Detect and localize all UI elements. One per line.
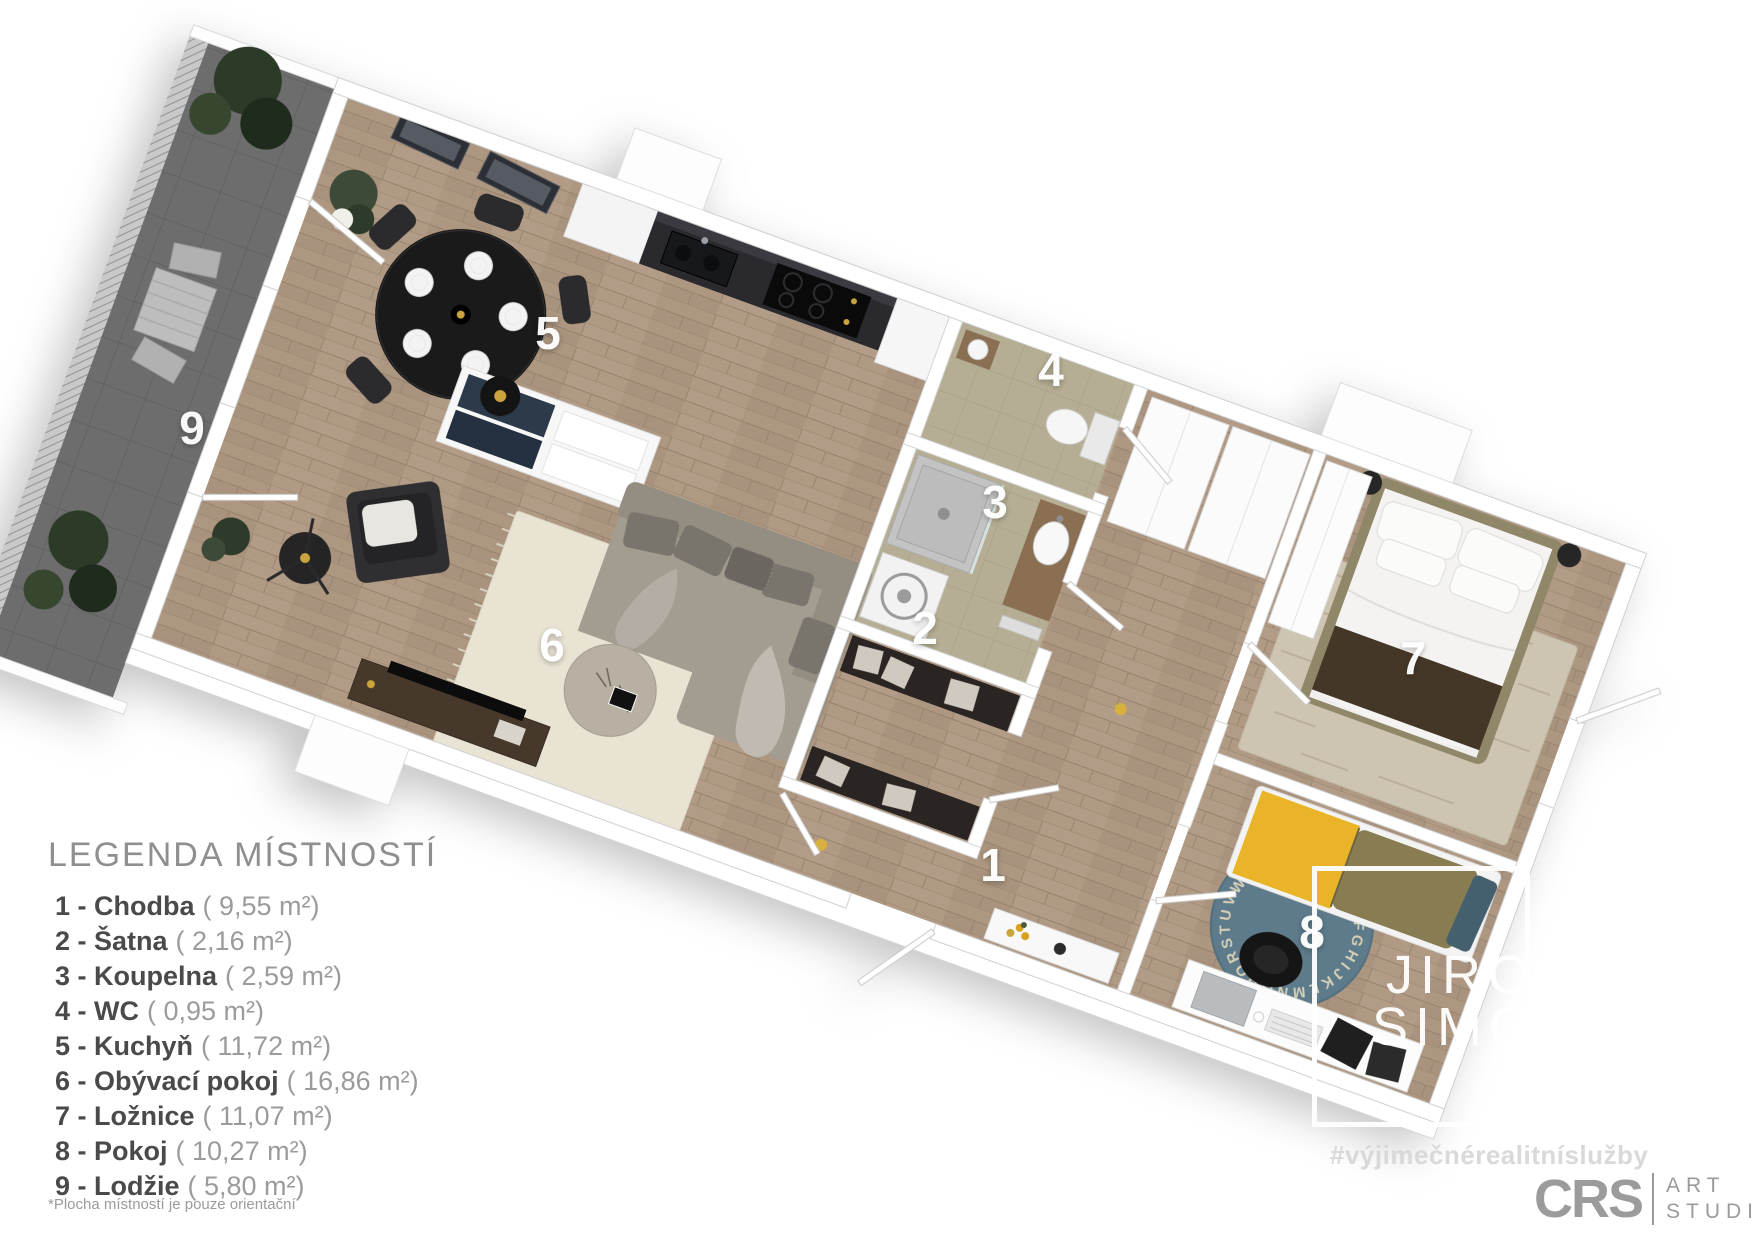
legend-item-label: 5 - Kuchyň (55, 1031, 193, 1061)
legend-item: 2 - Šatna( 2,16 m²) (48, 924, 437, 959)
room-label-2-satna: 2 (912, 601, 938, 655)
legend-item-label: 6 - Obývací pokoj (55, 1066, 279, 1096)
legend-item-area: ( 10,27 m²) (176, 1136, 308, 1166)
legend-item-label: 8 - Pokoj (55, 1136, 168, 1166)
studio-logo: CRS ART STUDIO (1534, 1172, 1754, 1226)
legend-item-area: ( 0,95 m²) (147, 996, 264, 1026)
room-label-9-lodzie: 9 (179, 401, 205, 455)
watermark-divider (1597, 928, 1600, 1120)
legend-item-area: ( 2,59 m²) (225, 961, 342, 991)
legend-item-label: 4 - WC (55, 996, 139, 1026)
legend-item-area: ( 9,55 m²) (203, 891, 320, 921)
room-legend: LEGENDA MÍSTNOSTÍ 1 - Chodba( 9,55 m²) 2… (48, 836, 437, 1204)
legend-item: 5 - Kuchyň( 11,72 m²) (48, 1029, 437, 1064)
legend-title: LEGENDA MÍSTNOSTÍ (48, 836, 437, 875)
legend-item: 7 - Ložnice( 11,07 m²) (48, 1099, 437, 1134)
armchair (345, 480, 451, 584)
legend-item-label: 2 - Šatna (55, 926, 168, 956)
room-label-6-obyvaci-pokoj: 6 (539, 618, 565, 672)
studio-logo-word-art: ART (1666, 1173, 1754, 1199)
watermark-suffix: CZ (1610, 996, 1696, 1058)
room-label-3-koupelna: 3 (982, 475, 1008, 529)
studio-logo-word-studio: STUDIO (1666, 1199, 1754, 1225)
floor-plan-screenshot: ABCDEFGHIJKLMNOPQRSTUVWXYZAB (0, 0, 1754, 1241)
legend-item: 8 - Pokoj( 10,27 m²) (48, 1134, 437, 1169)
legend-footnote: *Plocha místností je pouze orientační (48, 1196, 296, 1213)
room-label-4-wc: 4 (1038, 343, 1064, 397)
legend-item-label: 7 - Ložnice (55, 1101, 195, 1131)
legend-item-area: ( 11,72 m²) (201, 1031, 331, 1061)
room-label-1-chodba: 1 (980, 838, 1006, 892)
legend-item-area: ( 2,16 m²) (176, 926, 293, 956)
room-label-7-loznice: 7 (1400, 631, 1426, 685)
legend-item: 1 - Chodba( 9,55 m²) (48, 889, 437, 924)
legend-item: 3 - Koupelna( 2,59 m²) (48, 959, 437, 994)
legend-item: 6 - Obývací pokoj( 16,86 m²) (48, 1064, 437, 1099)
legend-item-area: ( 11,07 m²) (203, 1101, 333, 1131)
legend-item-area: ( 16,86 m²) (287, 1066, 419, 1096)
legend-item-label: 1 - Chodba (55, 891, 195, 921)
watermark-hashtag: #výjimečnérealitníslužby (1330, 1140, 1648, 1171)
legend-item: 4 - WC( 0,95 m²) (48, 994, 437, 1029)
legend-item-label: 3 - Koupelna (55, 961, 217, 991)
armchair-pillow (361, 499, 418, 548)
room-label-5-kuchyn: 5 (535, 306, 561, 360)
balcony-door-2 (203, 494, 298, 500)
studio-logo-divider (1652, 1173, 1654, 1225)
watermark-line2: SIMON (1372, 996, 1584, 1058)
studio-logo-initials: CRS (1534, 1172, 1642, 1226)
